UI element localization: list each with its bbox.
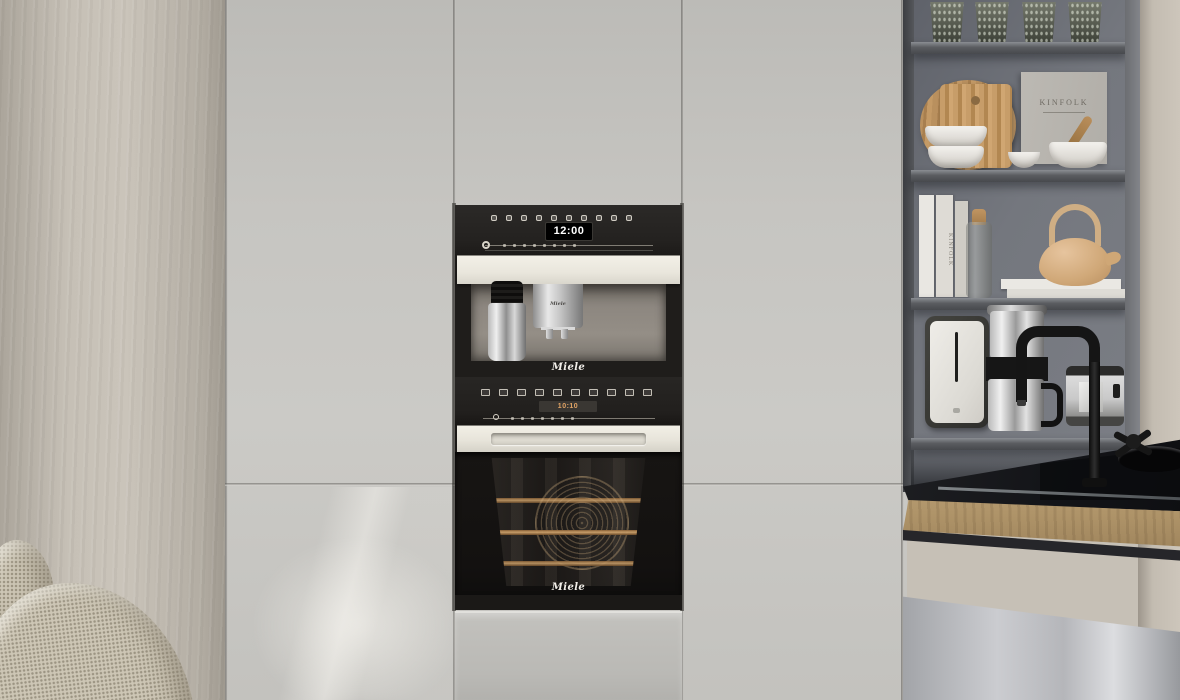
built-in-coffee-machine: 12:00 Miele Miele <box>455 205 682 377</box>
coffee-pot-icon <box>596 215 602 221</box>
built-in-oven: 10:10 Miele <box>455 377 682 610</box>
oven-power-button <box>493 414 499 420</box>
glass-bottle <box>966 222 992 298</box>
milk-froth-icon <box>566 215 572 221</box>
cookbook-subtitle-line <box>1043 112 1085 113</box>
toaster-lever <box>1113 384 1120 398</box>
moisture-plus-icon <box>535 389 544 396</box>
cabinet-seam <box>225 483 455 486</box>
oven-function-icon-row <box>481 388 657 396</box>
eco-bake-icon <box>625 389 634 396</box>
faucet-nozzle <box>1017 400 1026 406</box>
oven-sensor-marks <box>511 417 574 420</box>
rinse-icon <box>611 215 617 221</box>
coffee-drink-icon-row <box>491 214 651 222</box>
grill-icon <box>517 389 526 396</box>
shelf-side-panel <box>903 0 914 492</box>
smoked-glass-tumbler <box>927 2 967 42</box>
oven-rack <box>481 561 656 566</box>
hot-water-icon <box>551 215 557 221</box>
book-spine <box>919 195 934 297</box>
cabinet-seam <box>682 483 903 486</box>
conventional-heat-icon <box>499 389 508 396</box>
espresso-icon <box>491 215 497 221</box>
coffee-trim-band <box>457 255 680 284</box>
oven-rack <box>481 530 656 535</box>
smoked-glass-tumbler <box>972 2 1012 42</box>
miele-logo-oven: Miele <box>455 582 682 593</box>
beige-teapot <box>1039 238 1111 286</box>
coffee-icon <box>506 215 512 221</box>
dispenser-button <box>953 408 960 413</box>
coffee-sensor-strip <box>485 250 653 251</box>
coffee-sensor-marks <box>503 244 576 247</box>
coffee-spout-label: Miele <box>533 301 583 307</box>
bottom-heat-icon <box>571 389 580 396</box>
latte-macchiato-icon <box>536 215 542 221</box>
carafe-handle <box>1041 383 1063 427</box>
settings-icon <box>626 215 632 221</box>
cutting-board-hole <box>971 96 980 105</box>
smoked-glass-tumbler <box>1019 2 1059 42</box>
faucet-spout-arc <box>1016 326 1100 370</box>
kitchen-scene: 12:00 Miele Miele <box>0 0 1180 700</box>
water-level-window <box>955 332 958 382</box>
coffee-nozzles <box>541 327 575 339</box>
plaster-wall-right <box>1138 0 1180 700</box>
faucet-base <box>1082 478 1107 487</box>
double-cup-icon <box>581 215 587 221</box>
smoked-glass-tumbler <box>1065 2 1105 42</box>
cabinet-seam <box>225 0 228 700</box>
cookbook-title: KINFOLK <box>1021 98 1107 107</box>
drawer-front-below-oven <box>455 611 682 700</box>
milk-flask <box>488 303 526 361</box>
miele-logo-coffee: Miele <box>455 362 682 373</box>
valve-hub <box>1126 434 1141 449</box>
oven-clock-display: 10:10 <box>539 401 597 412</box>
milk-flask-cap <box>491 281 523 305</box>
oven-recessed-handle <box>491 433 646 445</box>
oven-door-glass <box>477 458 660 586</box>
shelf-board <box>911 42 1127 54</box>
faucet-riser-pipe <box>1089 362 1100 484</box>
fan-plus-icon <box>481 389 490 396</box>
white-bowl <box>928 146 984 168</box>
faucet-spout-drop <box>1016 362 1027 402</box>
shelf-board <box>911 170 1127 182</box>
clock-icon <box>643 389 652 396</box>
defrost-icon <box>607 389 616 396</box>
book-spine-title: KINFOLK <box>936 210 953 290</box>
shelf-side-panel <box>1125 0 1140 492</box>
oven-door <box>455 452 682 595</box>
auto-roast-icon <box>589 389 598 396</box>
intensive-bake-icon <box>553 389 562 396</box>
coffee-clock-display: 12:00 <box>545 222 593 241</box>
oven-fan-grille <box>535 476 629 570</box>
white-book-stack <box>1007 289 1125 298</box>
white-bowl <box>925 126 987 148</box>
open-shelving-unit: KINFOLK KINFOLK <box>903 0 1140 492</box>
cappuccino-icon <box>521 215 527 221</box>
